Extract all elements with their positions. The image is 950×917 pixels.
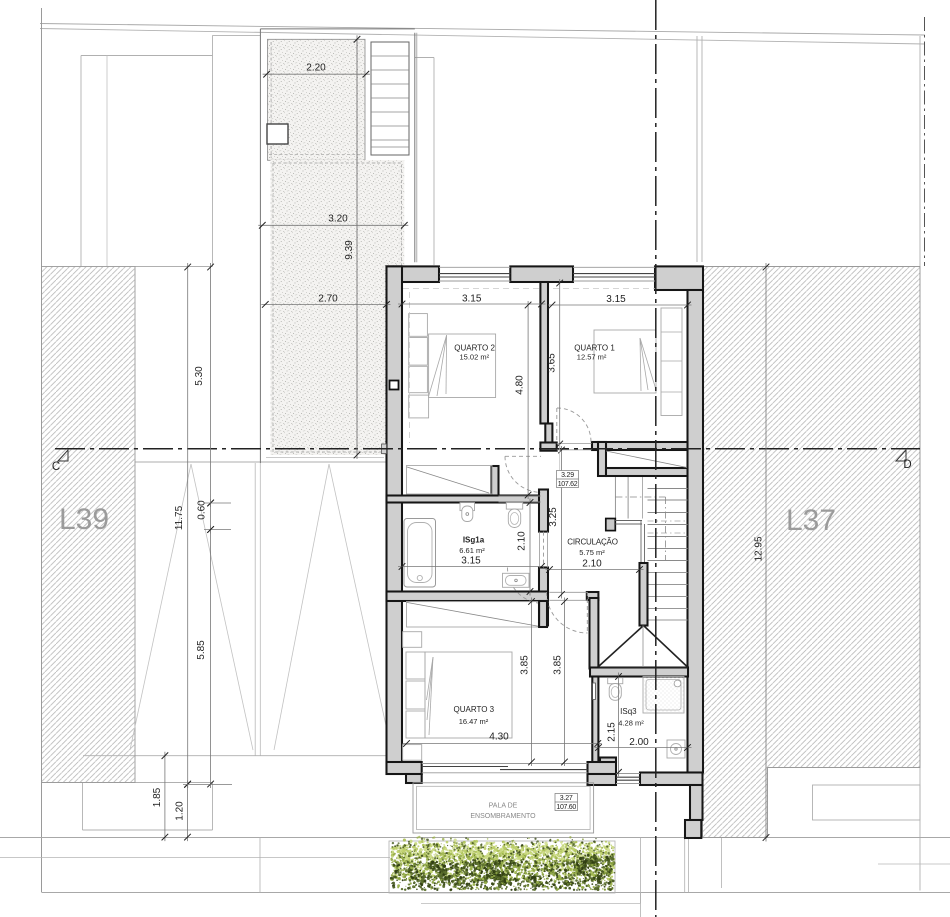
svg-text:12.95: 12.95	[754, 536, 765, 561]
svg-text:ENSOMBRAMENTO: ENSOMBRAMENTO	[470, 813, 536, 820]
svg-text:15.02 m²: 15.02 m²	[459, 353, 489, 362]
svg-text:107.62: 107.62	[558, 481, 578, 488]
svg-text:5.30: 5.30	[194, 366, 205, 386]
svg-text:3.27: 3.27	[560, 795, 573, 802]
svg-text:6.61 m²: 6.61 m²	[459, 546, 485, 555]
svg-text:C: C	[52, 461, 60, 473]
svg-text:QUARTO 3: QUARTO 3	[453, 705, 494, 714]
svg-text:2.70: 2.70	[318, 293, 338, 304]
svg-text:QUARTO 1: QUARTO 1	[574, 344, 615, 353]
svg-text:3.20: 3.20	[328, 214, 348, 225]
svg-text:9.39: 9.39	[344, 240, 355, 260]
svg-text:0.60: 0.60	[197, 500, 208, 520]
svg-text:1.85: 1.85	[152, 787, 163, 807]
svg-text:3.15: 3.15	[461, 556, 481, 567]
svg-text:16.47 m²: 16.47 m²	[459, 717, 489, 726]
svg-text:11.75: 11.75	[174, 505, 185, 530]
svg-text:2.10: 2.10	[582, 559, 602, 570]
svg-text:3.85: 3.85	[553, 655, 564, 675]
svg-text:5.75 m²: 5.75 m²	[579, 548, 605, 557]
svg-text:L39: L39	[59, 503, 109, 536]
svg-text:3.25: 3.25	[548, 507, 559, 527]
svg-text:3.15: 3.15	[606, 294, 626, 305]
svg-text:2.20: 2.20	[306, 63, 326, 74]
svg-text:D: D	[903, 459, 911, 471]
svg-text:2.10: 2.10	[517, 531, 528, 551]
svg-text:1.20: 1.20	[175, 801, 186, 821]
svg-text:3.65: 3.65	[547, 353, 558, 373]
svg-text:CIRCULAÇÃO: CIRCULAÇÃO	[567, 538, 617, 547]
svg-text:ISq3: ISq3	[620, 707, 637, 716]
svg-text:3.15: 3.15	[462, 293, 482, 304]
svg-text:PALA DE: PALA DE	[489, 803, 518, 810]
svg-text:107.60: 107.60	[556, 804, 576, 811]
svg-text:L37: L37	[786, 504, 836, 537]
svg-text:12.57 m²: 12.57 m²	[577, 353, 607, 362]
svg-text:4.30: 4.30	[489, 732, 509, 743]
svg-text:4.28 m²: 4.28 m²	[618, 719, 644, 728]
svg-text:QUARTO 2: QUARTO 2	[454, 344, 495, 353]
svg-text:5.85: 5.85	[196, 640, 207, 660]
svg-text:3.29: 3.29	[561, 472, 574, 479]
svg-text:2.00: 2.00	[629, 737, 649, 748]
svg-text:4.80: 4.80	[515, 375, 526, 395]
svg-text:2.15: 2.15	[607, 722, 618, 742]
svg-text:ISg1a: ISg1a	[463, 536, 485, 545]
svg-text:3.85: 3.85	[520, 655, 531, 675]
